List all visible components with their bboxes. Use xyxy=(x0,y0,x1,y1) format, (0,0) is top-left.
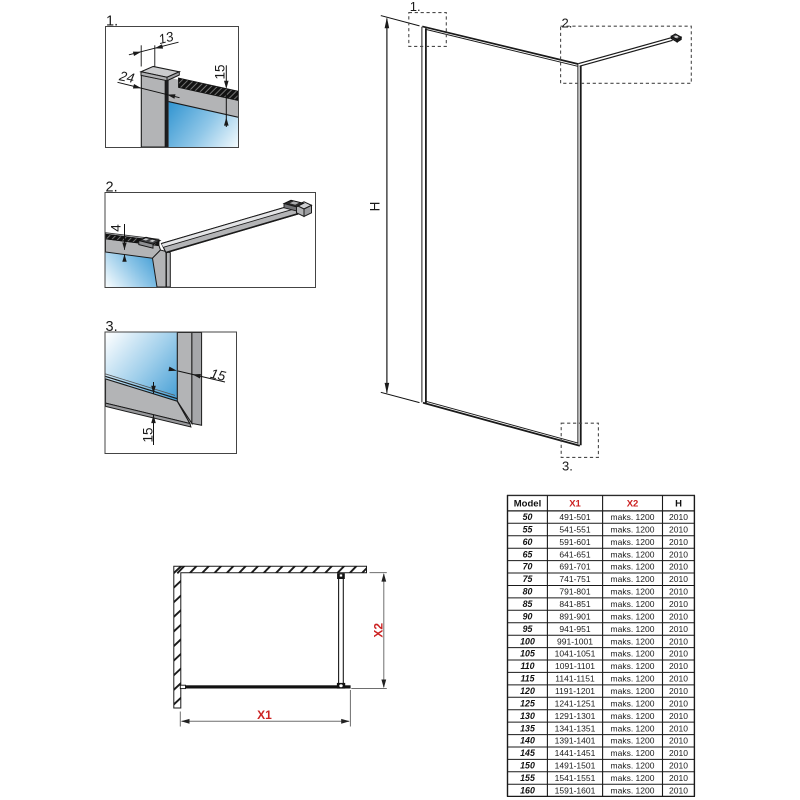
svg-text:maks. 1200: maks. 1200 xyxy=(611,785,655,795)
svg-text:maks. 1200: maks. 1200 xyxy=(611,649,655,659)
svg-text:1391-1401: 1391-1401 xyxy=(555,736,596,746)
svg-text:maks. 1200: maks. 1200 xyxy=(611,524,655,534)
svg-text:2010: 2010 xyxy=(669,611,688,621)
svg-text:110: 110 xyxy=(520,661,534,671)
svg-text:2010: 2010 xyxy=(669,649,688,659)
svg-text:2.: 2. xyxy=(106,180,118,196)
svg-text:2010: 2010 xyxy=(669,549,688,559)
svg-text:70: 70 xyxy=(523,562,533,572)
svg-text:maks. 1200: maks. 1200 xyxy=(611,549,655,559)
svg-text:120: 120 xyxy=(520,686,535,696)
svg-text:541-551: 541-551 xyxy=(559,524,590,534)
svg-text:841-851: 841-851 xyxy=(559,599,590,609)
svg-text:15: 15 xyxy=(141,427,156,442)
svg-text:X1: X1 xyxy=(257,708,272,722)
svg-text:1491-1501: 1491-1501 xyxy=(555,761,596,771)
svg-text:160: 160 xyxy=(520,785,535,795)
svg-text:1141-1151: 1141-1151 xyxy=(555,674,595,684)
svg-text:X1: X1 xyxy=(569,498,581,509)
svg-text:maks. 1200: maks. 1200 xyxy=(611,574,655,584)
svg-text:60: 60 xyxy=(523,537,533,547)
svg-text:2010: 2010 xyxy=(669,624,688,634)
svg-text:125: 125 xyxy=(520,698,535,708)
svg-text:maks. 1200: maks. 1200 xyxy=(611,761,655,771)
svg-text:maks. 1200: maks. 1200 xyxy=(611,587,655,597)
svg-text:maks. 1200: maks. 1200 xyxy=(611,773,655,783)
svg-text:H: H xyxy=(675,498,682,509)
svg-text:4: 4 xyxy=(108,224,123,232)
svg-text:891-901: 891-901 xyxy=(559,611,590,621)
svg-text:105: 105 xyxy=(520,649,535,659)
svg-text:791-801: 791-801 xyxy=(559,587,590,597)
svg-text:2010: 2010 xyxy=(669,736,688,746)
svg-text:140: 140 xyxy=(520,736,535,746)
svg-text:2.: 2. xyxy=(562,16,573,31)
svg-text:1341-1351: 1341-1351 xyxy=(555,723,596,733)
svg-text:80: 80 xyxy=(523,587,533,597)
svg-text:691-701: 691-701 xyxy=(559,562,590,572)
svg-text:55: 55 xyxy=(523,524,533,534)
svg-text:991-1001: 991-1001 xyxy=(557,636,593,646)
svg-text:3.: 3. xyxy=(562,458,573,473)
svg-text:maks. 1200: maks. 1200 xyxy=(611,537,655,547)
svg-text:90: 90 xyxy=(523,611,533,621)
svg-text:741-751: 741-751 xyxy=(559,574,590,584)
svg-text:2010: 2010 xyxy=(669,562,688,572)
svg-text:maks. 1200: maks. 1200 xyxy=(611,686,655,696)
svg-text:2010: 2010 xyxy=(669,512,688,522)
svg-text:maks. 1200: maks. 1200 xyxy=(611,698,655,708)
svg-text:2010: 2010 xyxy=(669,524,688,534)
svg-text:1291-1301: 1291-1301 xyxy=(555,711,596,721)
svg-text:maks. 1200: maks. 1200 xyxy=(611,661,655,671)
svg-text:2010: 2010 xyxy=(669,711,688,721)
svg-text:2010: 2010 xyxy=(669,723,688,733)
svg-text:maks. 1200: maks. 1200 xyxy=(611,624,655,634)
svg-text:491-501: 491-501 xyxy=(559,512,590,522)
svg-text:maks. 1200: maks. 1200 xyxy=(611,611,655,621)
svg-text:maks. 1200: maks. 1200 xyxy=(611,562,655,572)
svg-text:50: 50 xyxy=(523,512,533,522)
svg-text:2010: 2010 xyxy=(669,674,688,684)
svg-text:1041-1051: 1041-1051 xyxy=(555,649,596,659)
svg-text:155: 155 xyxy=(520,773,535,783)
svg-text:2010: 2010 xyxy=(669,785,688,795)
svg-text:2010: 2010 xyxy=(669,599,688,609)
svg-text:2010: 2010 xyxy=(669,773,688,783)
svg-text:2010: 2010 xyxy=(669,761,688,771)
svg-text:2010: 2010 xyxy=(669,537,688,547)
svg-text:641-651: 641-651 xyxy=(559,549,590,559)
svg-text:H: H xyxy=(368,202,383,212)
svg-text:2010: 2010 xyxy=(669,587,688,597)
svg-text:maks. 1200: maks. 1200 xyxy=(611,748,655,758)
svg-text:1.: 1. xyxy=(410,0,421,14)
svg-text:maks. 1200: maks. 1200 xyxy=(611,512,655,522)
svg-text:2010: 2010 xyxy=(669,748,688,758)
svg-text:2010: 2010 xyxy=(669,686,688,696)
svg-text:150: 150 xyxy=(520,761,535,771)
svg-text:65: 65 xyxy=(523,549,533,559)
svg-text:maks. 1200: maks. 1200 xyxy=(611,599,655,609)
svg-text:75: 75 xyxy=(523,574,533,584)
svg-text:2010: 2010 xyxy=(669,661,688,671)
svg-text:maks. 1200: maks. 1200 xyxy=(611,674,655,684)
svg-text:1441-1451: 1441-1451 xyxy=(555,748,596,758)
svg-text:115: 115 xyxy=(520,674,534,684)
svg-text:Model: Model xyxy=(514,498,541,509)
svg-text:24: 24 xyxy=(117,68,136,86)
svg-text:X2: X2 xyxy=(627,498,639,509)
svg-text:145: 145 xyxy=(520,748,535,758)
svg-text:1541-1551: 1541-1551 xyxy=(555,773,596,783)
svg-text:2010: 2010 xyxy=(669,574,688,584)
svg-text:X2: X2 xyxy=(372,623,386,638)
svg-text:95: 95 xyxy=(523,624,533,634)
svg-text:maks. 1200: maks. 1200 xyxy=(611,711,655,721)
svg-text:130: 130 xyxy=(520,711,535,721)
svg-text:maks. 1200: maks. 1200 xyxy=(611,723,655,733)
svg-text:2010: 2010 xyxy=(669,698,688,708)
svg-text:941-951: 941-951 xyxy=(559,624,590,634)
svg-text:1091-1101: 1091-1101 xyxy=(555,661,595,671)
svg-text:maks. 1200: maks. 1200 xyxy=(611,636,655,646)
svg-text:maks. 1200: maks. 1200 xyxy=(611,736,655,746)
svg-text:591-601: 591-601 xyxy=(559,537,590,547)
svg-text:2010: 2010 xyxy=(669,636,688,646)
svg-text:15: 15 xyxy=(212,64,227,79)
svg-text:1.: 1. xyxy=(106,14,118,30)
svg-text:85: 85 xyxy=(523,599,533,609)
svg-text:100: 100 xyxy=(520,636,535,646)
svg-text:1191-1201: 1191-1201 xyxy=(555,686,595,696)
svg-text:1241-1251: 1241-1251 xyxy=(555,698,596,708)
svg-text:135: 135 xyxy=(520,723,535,733)
svg-text:1591-1601: 1591-1601 xyxy=(555,785,596,795)
